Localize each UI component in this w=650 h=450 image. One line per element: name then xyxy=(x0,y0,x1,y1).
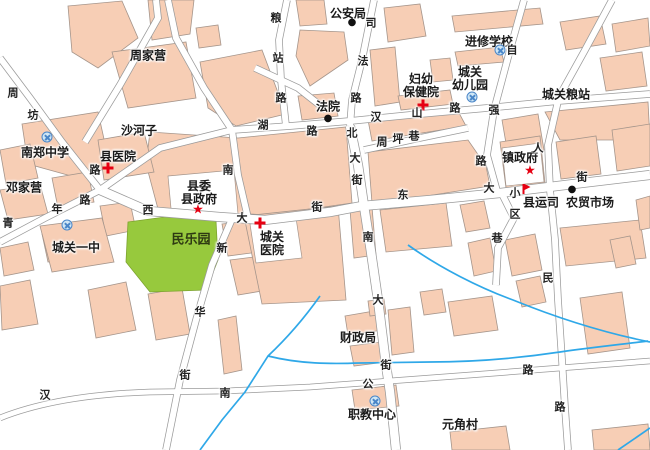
road-label-hannangonglu-1: 南 xyxy=(220,387,231,400)
poi-label-chengguanyoueryuan: 城关 幼儿园 xyxy=(452,66,488,92)
road-label-nanhulu-0: 南 xyxy=(223,164,234,177)
poi-label-nanzhengzhongxue: 南郑中学 xyxy=(21,147,69,160)
road-label-hanshanlu-2: 路 xyxy=(450,102,461,115)
poi-label-zhoujiaying: 周家营 xyxy=(130,50,166,63)
poi-label-caizhengju: 财政局 xyxy=(340,332,376,345)
road-label-xiaoquxiang-0: 小 xyxy=(510,187,521,200)
road-label-hanshanlu-1: 山 xyxy=(412,107,423,120)
road-label-beidajie-0: 北 xyxy=(347,127,358,140)
black-dot-icon: ● xyxy=(568,185,577,195)
school-icon xyxy=(62,220,73,231)
road-label-nandajie-1: 大 xyxy=(373,294,384,307)
poi-label-xianyunsi: 县运司 xyxy=(523,197,559,210)
road-label-beidajie-1: 大 xyxy=(350,152,361,165)
road-label-nanhulu-1: 湖 xyxy=(258,119,269,132)
road-label-hannangonglu-2: 公 xyxy=(363,378,374,391)
road-label-xidajie-0: 西 xyxy=(143,204,154,217)
road-label-sifalu-2: 路 xyxy=(351,92,362,105)
road-label-dongdajie-2: 街 xyxy=(577,171,588,184)
road-label-dongdajie-1: 大 xyxy=(484,182,495,195)
road-label-xiaoquxiang-1: 区 xyxy=(510,208,521,221)
poi-label-dengjiaying: 邓家营 xyxy=(6,182,42,195)
road-label-renminlu-0: 人 xyxy=(533,142,544,155)
road-label-zhoufanglu-1: 坊 xyxy=(28,109,39,122)
red-flag-icon xyxy=(523,184,532,194)
poi-label-chengguanyiyuan: 城关 医院 xyxy=(260,231,284,257)
map-graphics xyxy=(0,0,650,450)
road-label-qingnianlu-1: 年 xyxy=(52,203,63,216)
road-label-qingnianlu-0: 青 xyxy=(3,217,14,230)
red-cross-icon xyxy=(103,163,114,174)
road-label-zhoupingxiang-1: 坪 xyxy=(393,133,404,146)
red-star-icon: ★ xyxy=(192,204,204,217)
black-dot-icon: ● xyxy=(324,114,333,124)
road-label-xinhuajie-0: 新 xyxy=(217,242,228,255)
road-label-xidajie-2: 街 xyxy=(312,201,323,214)
school-icon xyxy=(495,45,506,56)
road-label-beidajie-2: 街 xyxy=(352,174,363,187)
road-label-hannangonglu-0: 汉 xyxy=(40,389,51,402)
road-label-dongdajie-0: 东 xyxy=(398,189,409,202)
poi-label-fayuan: 法院 xyxy=(316,101,340,114)
road-label-xiaoquxiang-2: 巷 xyxy=(492,232,503,245)
poi-label-yuanjiaocun: 元角村 xyxy=(442,419,478,432)
road-label-zhoupingxiang-0: 周 xyxy=(377,136,388,149)
poi-label-shahezi: 沙河子 xyxy=(121,125,157,138)
road-label-sifalu-0: 司 xyxy=(366,17,377,30)
road-label-ziqianglu-2: 路 xyxy=(476,155,487,168)
road-label-hannangonglu-3: 路 xyxy=(523,364,534,377)
road-label-xidajie-1: 大 xyxy=(237,212,248,225)
road-label-hanshanlu-0: 汉 xyxy=(371,111,382,124)
poi-label-zhijiaozhongxin: 职教中心 xyxy=(348,409,396,422)
poi-label-minleyuan: 民乐园 xyxy=(171,234,210,247)
poi-label-fuyoubaojianyuan: 妇幼 保健院 xyxy=(403,73,439,99)
road-label-qingnianlu-2: 路 xyxy=(80,194,91,207)
road-label-zhoufanglu-0: 周 xyxy=(8,87,19,100)
road-label-renminlu-1: 民 xyxy=(543,272,554,285)
school-icon xyxy=(42,132,53,143)
red-star-icon: ★ xyxy=(524,165,536,178)
poi-label-nongmaoshichang: 农贸市场 xyxy=(566,197,614,210)
road-label-zhoupingxiang-2: 巷 xyxy=(409,130,420,143)
road-label-sifalu-1: 法 xyxy=(358,55,369,68)
road-label-liangzhanlu-0: 粮 xyxy=(271,12,282,25)
school-icon xyxy=(370,396,381,407)
road-label-liangzhanlu-2: 路 xyxy=(276,92,287,105)
road-label-renminlu-2: 路 xyxy=(555,401,566,414)
road-label-nanhulu-2: 路 xyxy=(307,125,318,138)
road-label-liangzhanlu-1: 站 xyxy=(273,52,284,65)
map-canvas: 周家营 公安局 进修学校 妇幼 保健院 城关 幼儿园 城关粮站 沙河子 法院 南… xyxy=(0,0,650,450)
poi-label-chengguanliangzhan: 城关粮站 xyxy=(542,89,590,102)
black-dot-icon: ● xyxy=(348,18,357,28)
road-label-xinhuajie-1: 华 xyxy=(195,306,206,319)
school-icon xyxy=(467,92,478,103)
road-label-nandajie-0: 南 xyxy=(363,231,374,244)
road-label-xinhuajie-2: 街 xyxy=(180,369,191,382)
poi-label-chengguanyizhong: 城关一中 xyxy=(52,242,100,255)
red-cross-icon xyxy=(255,218,266,229)
road-label-zhoufanglu-2: 路 xyxy=(90,164,101,177)
road-label-ziqianglu-1: 强 xyxy=(489,104,500,117)
road-label-ziqianglu-0: 自 xyxy=(507,44,518,57)
road-label-nandajie-2: 街 xyxy=(381,359,392,372)
